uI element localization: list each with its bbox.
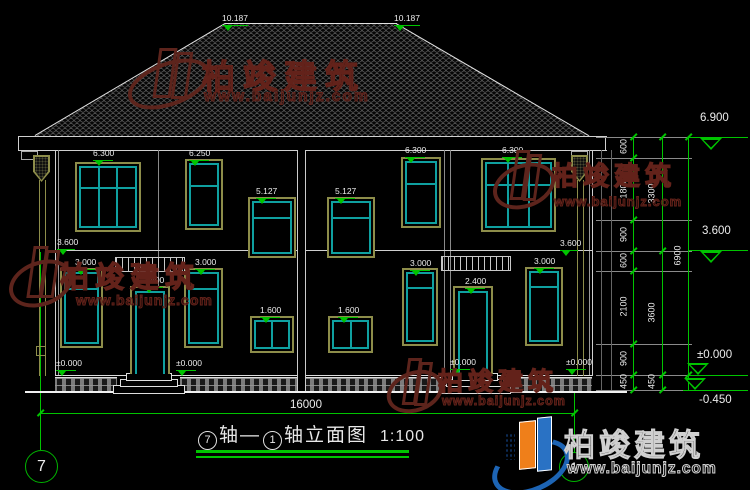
eave-cap-right (605, 136, 606, 151)
ext-line-v (611, 150, 612, 390)
brand-logo-icon (488, 416, 566, 490)
window-stair-1 (248, 197, 296, 258)
floor-line-left (55, 250, 248, 251)
drawing-title: 7轴—1轴立面图1:100 (196, 424, 425, 450)
rain-leader-head-right (571, 155, 588, 182)
cad-elevation-drawing: 10.187 10.187 6.300 6.250 5.127 5.127 6.… (0, 0, 750, 490)
eave-fascia-top (18, 136, 607, 137)
window-upper-3 (401, 157, 441, 228)
dim-label: 450 (620, 357, 629, 407)
level-line (688, 375, 748, 376)
logo-building-blue-icon (537, 416, 552, 472)
brand-name: 柏竣建筑 (564, 420, 704, 465)
window-lower-3 (402, 268, 438, 346)
elev-mark-zero-4: ±0.000 (566, 358, 592, 370)
window-upper-4 (481, 158, 556, 232)
elev-mark-ridge-left: 10.187 (222, 14, 248, 26)
title-axis-circle-7: 7 (198, 431, 217, 450)
elev-mark-floor-right: 3.600 (560, 239, 581, 251)
logo-window-dots-icon (505, 433, 515, 460)
logo-building-orange-icon (519, 420, 536, 470)
window-stair-2 (327, 197, 375, 258)
elev-mark-door-left: 2.400 (143, 276, 164, 288)
elev-mark-door-right: 2.400 (465, 277, 486, 289)
level-line (683, 390, 748, 391)
dim-chain-middle (662, 137, 663, 390)
window-lower-4 (525, 267, 563, 346)
elev-mark-w5: 6.300 (405, 146, 426, 158)
elev-mark-zero-1: ±0.000 (56, 359, 82, 371)
wall-corner-left-inner (58, 150, 59, 376)
dim-line-bottom (40, 413, 575, 414)
dim-label-total-width: 16000 (290, 400, 322, 412)
elev-mark-w3: 5.127 (256, 187, 277, 199)
party-wall-joint (297, 150, 306, 392)
ext-line (596, 137, 692, 138)
title-underline-thin (196, 456, 409, 458)
elev-mark-f5: 3.000 (410, 259, 431, 271)
rain-leader-head-left (33, 155, 50, 182)
elev-mark-f1: 3.000 (75, 258, 96, 270)
elev-mark-f6: 3.000 (534, 257, 555, 269)
ext-line-v (601, 150, 602, 390)
dim-label: 2100 (620, 282, 629, 332)
wall-corner-right-outer (592, 150, 593, 376)
elev-mark-ridge-right: 10.187 (394, 14, 420, 26)
axis-bubble-7: 7 (25, 450, 58, 483)
window-small-2 (328, 316, 373, 353)
elev-mark-floor-left: 3.600 (57, 238, 78, 250)
brand-logo: 柏竣建筑 www.baijunjz.com (488, 416, 750, 490)
wall-corner-left-outer (55, 150, 56, 376)
level-label: 6.900 (700, 113, 729, 125)
elev-mark-f4: 1.600 (338, 306, 359, 318)
dim-label-total-height: 6900 (674, 231, 683, 281)
downspout-right (577, 180, 584, 376)
dim-label: 1800 (620, 164, 629, 214)
brand-url: www.baijunjz.com (567, 460, 717, 478)
window-upper-2 (185, 159, 223, 230)
elev-mark-f3: 1.600 (260, 306, 281, 318)
window-small-1 (250, 316, 294, 353)
drawing-scale: 1:100 (380, 428, 425, 445)
dim-chain-inner (633, 137, 634, 390)
elev-mark-w6: 6.300 (502, 146, 523, 158)
window-lower-1 (60, 268, 103, 348)
roof-ridge-line (225, 23, 397, 24)
eave-cap-left (18, 136, 19, 151)
window-lower-2 (184, 268, 223, 348)
dim-chain-outer (688, 137, 689, 390)
wall-corner-right-inner (589, 150, 590, 376)
window-upper-1 (75, 162, 141, 232)
dim-label: 600 (620, 236, 629, 286)
level-label: ±0.000 (697, 350, 732, 362)
roof-tile-hatch (20, 21, 612, 137)
level-label: 3.600 (702, 226, 731, 238)
title-underline-thick (196, 450, 409, 453)
dim-label: 450 (648, 357, 657, 407)
elev-mark-w4: 5.127 (335, 187, 356, 199)
elev-mark-w1: 6.300 (93, 149, 114, 161)
downspout-bracket (36, 346, 46, 356)
door-lintel-grille-right (441, 256, 511, 271)
elev-mark-f2: 3.000 (195, 258, 216, 270)
elev-mark-zero-3: ±0.000 (450, 358, 476, 370)
dim-label: 3600 (648, 288, 657, 338)
elev-mark-zero-2: ±0.000 (176, 359, 202, 371)
dim-label: 3300 (648, 169, 657, 219)
elev-mark-w2: 6.250 (189, 149, 210, 161)
step-left-3 (126, 373, 172, 381)
level-label: -0.450 (699, 395, 732, 407)
entry-door-left (130, 286, 170, 374)
title-axis-circle-1: 1 (263, 431, 282, 450)
door-lintel-grille-left (115, 257, 185, 272)
